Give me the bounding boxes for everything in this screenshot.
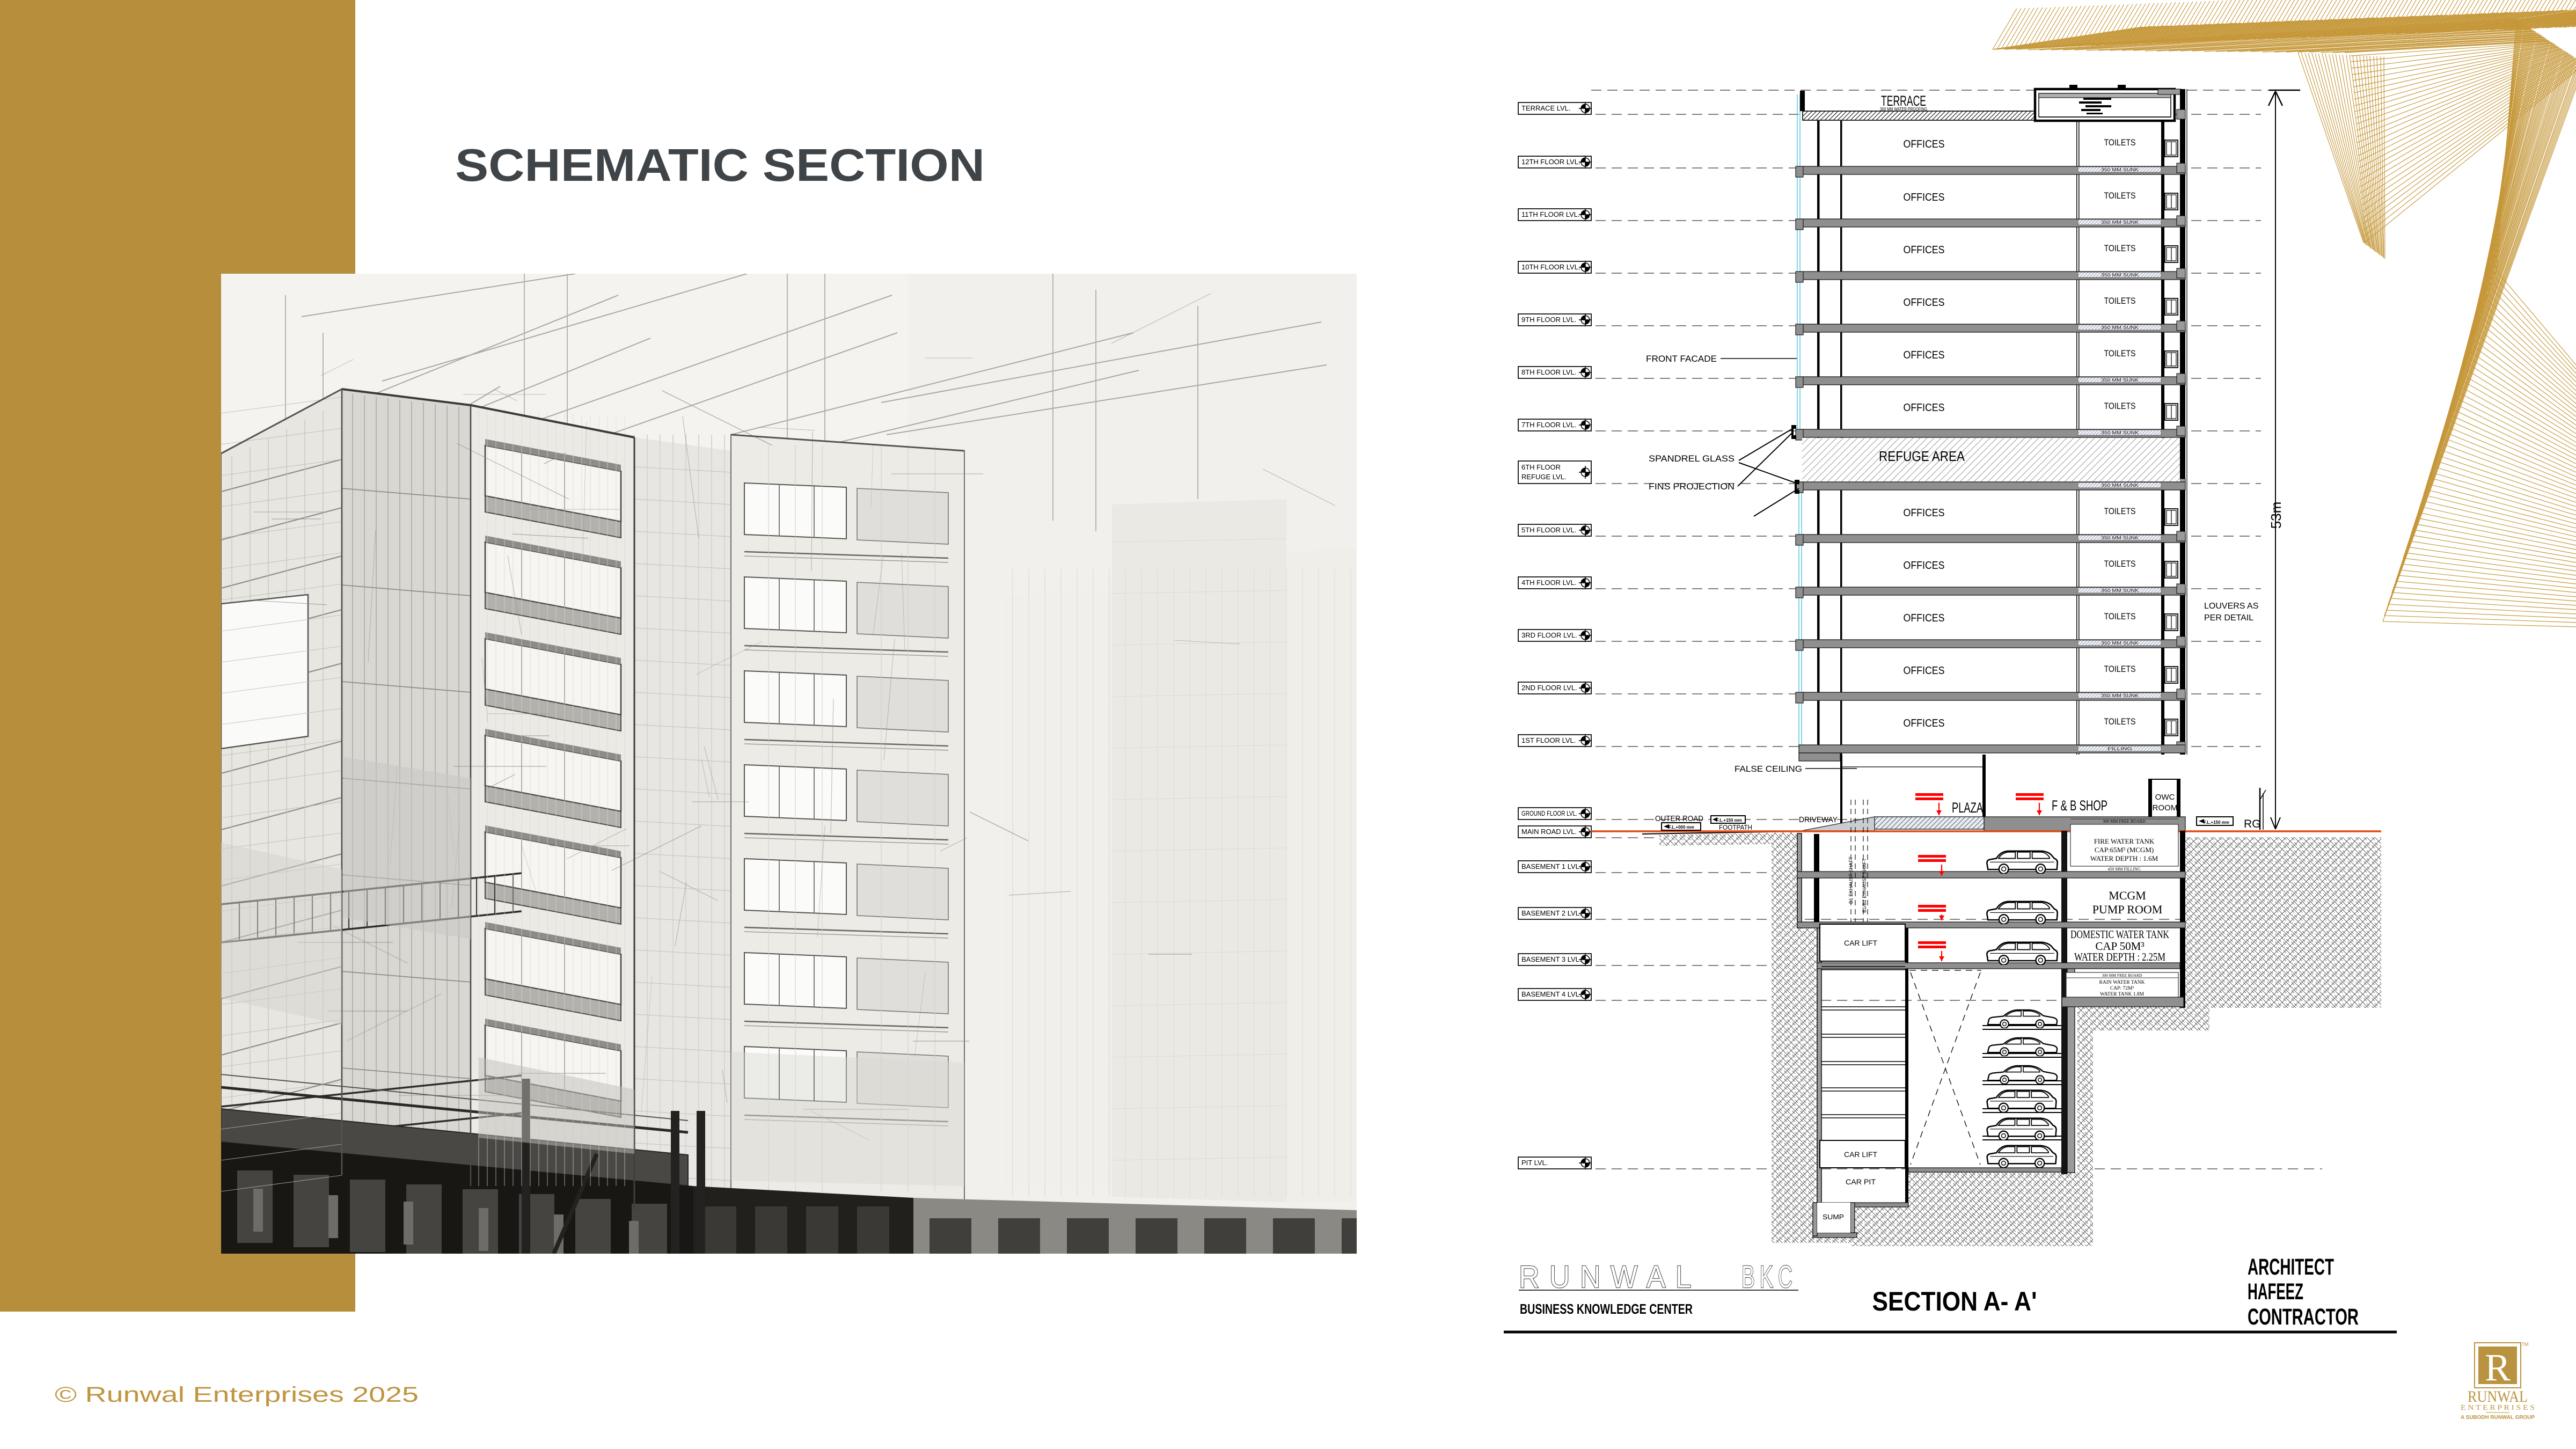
- svg-text:PLAZA: PLAZA: [1952, 800, 1983, 816]
- svg-text:FINS PROJECTION: FINS PROJECTION: [1649, 481, 1735, 492]
- svg-text:12TH FLOOR LVL.: 12TH FLOOR LVL.: [1521, 158, 1580, 166]
- svg-text:SUMP: SUMP: [1823, 1213, 1844, 1221]
- svg-text:CAP: 72M³: CAP: 72M³: [2110, 986, 2134, 991]
- svg-text:FRONT FACADE: FRONT FACADE: [1646, 354, 1717, 364]
- svg-text:REFUGE AREA: REFUGE AREA: [1879, 448, 1965, 464]
- svg-text:PUMP ROOM: PUMP ROOM: [2092, 903, 2163, 916]
- svg-text:OFFICES: OFFICES: [1904, 349, 1945, 361]
- svg-text:FOOTPATH: FOOTPATH: [1719, 823, 1752, 831]
- svg-text:B1 EXHAUST SHAFT: B1 EXHAUST SHAFT: [1848, 857, 1854, 904]
- svg-text:CAP:65M³ (MCGM): CAP:65M³ (MCGM): [2095, 846, 2154, 854]
- svg-text:TM: TM: [2522, 1342, 2529, 1347]
- svg-text:FILLING: FILLING: [2107, 746, 2132, 751]
- svg-text:350 MM SUNK: 350 MM SUNK: [2101, 693, 2139, 698]
- svg-text:8TH FLOOR LVL.: 8TH FLOOR LVL.: [1521, 368, 1576, 376]
- svg-text:RUNWAL: RUNWAL: [1519, 1260, 1701, 1294]
- svg-text:TOILETS: TOILETS: [2104, 506, 2136, 516]
- svg-text:350 MM SUNK: 350 MM SUNK: [2101, 588, 2139, 593]
- svg-text:BKC: BKC: [1741, 1260, 1797, 1294]
- svg-text:SECTION A- A': SECTION A- A': [1872, 1286, 2037, 1316]
- svg-text:53m: 53m: [2268, 502, 2284, 529]
- svg-text:TOILETS: TOILETS: [2104, 137, 2136, 148]
- svg-text:OFFICES: OFFICES: [1904, 244, 1945, 256]
- svg-text:4TH FLOOR LVL.: 4TH FLOOR LVL.: [1521, 579, 1576, 587]
- svg-text:FIRE WATER TANK: FIRE WATER TANK: [2094, 837, 2155, 845]
- svg-text:F.L.+150 mm: F.L.+150 mm: [1716, 818, 1742, 823]
- svg-text:TOILETS: TOILETS: [2104, 243, 2136, 253]
- svg-text:PIT LVL.: PIT LVL.: [1521, 1159, 1548, 1167]
- svg-text:DOMESTIC WATER TANK: DOMESTIC WATER TANK: [2070, 928, 2169, 941]
- svg-text:300 MM WATER PROOFING: 300 MM WATER PROOFING: [1880, 107, 1927, 112]
- svg-text:CAR LIFT: CAR LIFT: [1844, 939, 1877, 947]
- svg-text:OFFICES: OFFICES: [1904, 402, 1945, 414]
- svg-text:B1/B2 EXHAUST SHAFT: B1/B2 EXHAUST SHAFT: [1862, 858, 1867, 913]
- svg-text:300 MM FREE BOARD: 300 MM FREE BOARD: [2102, 973, 2142, 978]
- svg-text:TOILETS: TOILETS: [2104, 559, 2136, 569]
- svg-text:FALSE CEILING: FALSE CEILING: [1735, 765, 1802, 774]
- svg-text:RAIN WATER TANK: RAIN WATER TANK: [2099, 980, 2145, 985]
- svg-text:450 MM FILLING: 450 MM FILLING: [2107, 867, 2141, 872]
- svg-text:350 MM SUNK: 350 MM SUNK: [2101, 535, 2139, 540]
- svg-text:10TH FLOOR LVL.: 10TH FLOOR LVL.: [1521, 263, 1580, 271]
- svg-text:300 MM FREE BOARD: 300 MM FREE BOARD: [2103, 819, 2146, 824]
- svg-text:LOUVERS AS: LOUVERS AS: [2204, 602, 2258, 611]
- svg-text:MCGM: MCGM: [2109, 889, 2146, 902]
- svg-text:BASEMENT 2 LVL.: BASEMENT 2 LVL.: [1521, 909, 1582, 917]
- svg-text:RUNWAL: RUNWAL: [2468, 1388, 2528, 1406]
- svg-text:CAR PIT: CAR PIT: [1846, 1177, 1876, 1186]
- svg-text:11TH FLOOR LVL.: 11TH FLOOR LVL.: [1521, 210, 1580, 218]
- svg-text:MAIN ROAD LVL.: MAIN ROAD LVL.: [1521, 828, 1577, 836]
- svg-text:TOILETS: TOILETS: [2104, 664, 2136, 674]
- svg-text:1ST FLOOR LVL.: 1ST FLOOR LVL.: [1521, 736, 1576, 744]
- svg-text:E N T E R P R I S E S: E N T E R P R I S E S: [2461, 1404, 2535, 1412]
- svg-text:TOILETS: TOILETS: [2104, 296, 2136, 306]
- svg-text:F.L.+000 mm: F.L.+000 mm: [1668, 825, 1694, 830]
- svg-text:TOILETS: TOILETS: [2104, 401, 2136, 411]
- svg-text:9TH FLOOR LVL.: 9TH FLOOR LVL.: [1521, 316, 1576, 324]
- svg-text:OFFICES: OFFICES: [1904, 297, 1945, 309]
- svg-text:TOILETS: TOILETS: [2104, 611, 2136, 621]
- svg-text:OUTER ROAD: OUTER ROAD: [1655, 814, 1703, 823]
- svg-text:CAR LIFT: CAR LIFT: [1844, 1150, 1877, 1159]
- svg-text:ROOM: ROOM: [2153, 803, 2178, 813]
- svg-text:7TH FLOOR LVL.: 7TH FLOOR LVL.: [1521, 421, 1576, 429]
- svg-text:HAFEEZ: HAFEEZ: [2248, 1279, 2303, 1305]
- svg-text:350 MM SUNK: 350 MM SUNK: [2101, 377, 2139, 383]
- svg-text:OFFICES: OFFICES: [1904, 138, 1945, 150]
- svg-text:OFFICES: OFFICES: [1904, 192, 1945, 203]
- svg-text:350 MM SUNK: 350 MM SUNK: [2101, 167, 2139, 172]
- svg-text:350 MM SUNK: 350 MM SUNK: [2101, 430, 2139, 435]
- svg-text:5TH FLOOR LVL.: 5TH FLOOR LVL.: [1521, 526, 1576, 534]
- svg-text:3RD FLOOR LVL.: 3RD FLOOR LVL.: [1521, 631, 1577, 639]
- svg-text:GROUND FLOOR LVL.: GROUND FLOOR LVL.: [1521, 809, 1577, 817]
- svg-text:CONTRACTOR: CONTRACTOR: [2248, 1304, 2359, 1330]
- svg-text:ARCHITECT: ARCHITECT: [2248, 1254, 2334, 1280]
- svg-text:TOILETS: TOILETS: [2104, 191, 2136, 201]
- svg-text:350 MM SUNK: 350 MM SUNK: [2101, 482, 2139, 488]
- svg-text:DRIVEWAY: DRIVEWAY: [1799, 815, 1838, 824]
- svg-text:BASEMENT 1 LVL.: BASEMENT 1 LVL.: [1521, 862, 1582, 870]
- svg-text:350 MM SUNK: 350 MM SUNK: [2101, 272, 2139, 277]
- svg-text:OFFICES: OFFICES: [1904, 665, 1945, 677]
- svg-text:F.L.+150 mm: F.L.+150 mm: [2204, 820, 2229, 825]
- svg-text:REFUGE LVL.: REFUGE LVL.: [1521, 473, 1567, 481]
- svg-text:© Runwal Enterprises 2025: © Runwal Enterprises 2025: [55, 1383, 419, 1407]
- svg-text:350 MM SUNK: 350 MM SUNK: [2101, 640, 2139, 646]
- svg-text:BASEMENT 4 LVL.: BASEMENT 4 LVL.: [1521, 990, 1582, 998]
- svg-text:TOILETS: TOILETS: [2104, 348, 2136, 358]
- svg-text:350 MM SUNK: 350 MM SUNK: [2101, 219, 2139, 225]
- svg-text:BASEMENT 3 LVL.: BASEMENT 3 LVL.: [1521, 955, 1582, 963]
- svg-text:OFFICES: OFFICES: [1904, 560, 1945, 572]
- svg-text:WATER TANK 1.8M: WATER TANK 1.8M: [2100, 992, 2145, 997]
- svg-text:WATER DEPTH : 2.25M: WATER DEPTH : 2.25M: [2074, 950, 2165, 963]
- svg-text:OFFICES: OFFICES: [1904, 718, 1945, 729]
- svg-text:WATER DEPTH : 1.6M: WATER DEPTH : 1.6M: [2090, 854, 2158, 862]
- svg-text:6TH FLOOR: 6TH FLOOR: [1521, 463, 1561, 471]
- svg-text:R: R: [2485, 1346, 2511, 1389]
- svg-text:SCHEMATIC SECTION: SCHEMATIC SECTION: [455, 140, 985, 191]
- svg-text:TERRACE LVL.: TERRACE LVL.: [1521, 104, 1571, 112]
- svg-text:OFFICES: OFFICES: [1904, 507, 1945, 519]
- svg-text:F & B SHOP: F & B SHOP: [2052, 797, 2107, 814]
- svg-text:2ND FLOOR LVL.: 2ND FLOOR LVL.: [1521, 684, 1577, 692]
- svg-text:A SUBODH RUNWAL GROUP: A SUBODH RUNWAL GROUP: [2461, 1415, 2535, 1421]
- svg-text:OWC: OWC: [2155, 793, 2175, 802]
- svg-text:PER DETAIL: PER DETAIL: [2204, 613, 2253, 623]
- svg-text:RG: RG: [2244, 818, 2261, 830]
- svg-text:SPANDREL GLASS: SPANDREL GLASS: [1649, 453, 1735, 464]
- svg-text:350 MM SUNK: 350 MM SUNK: [2101, 325, 2139, 330]
- svg-text:BUSINESS KNOWLEDGE CENTER: BUSINESS KNOWLEDGE CENTER: [1520, 1301, 1693, 1317]
- svg-text:TOILETS: TOILETS: [2104, 716, 2136, 727]
- svg-text:OFFICES: OFFICES: [1904, 612, 1945, 624]
